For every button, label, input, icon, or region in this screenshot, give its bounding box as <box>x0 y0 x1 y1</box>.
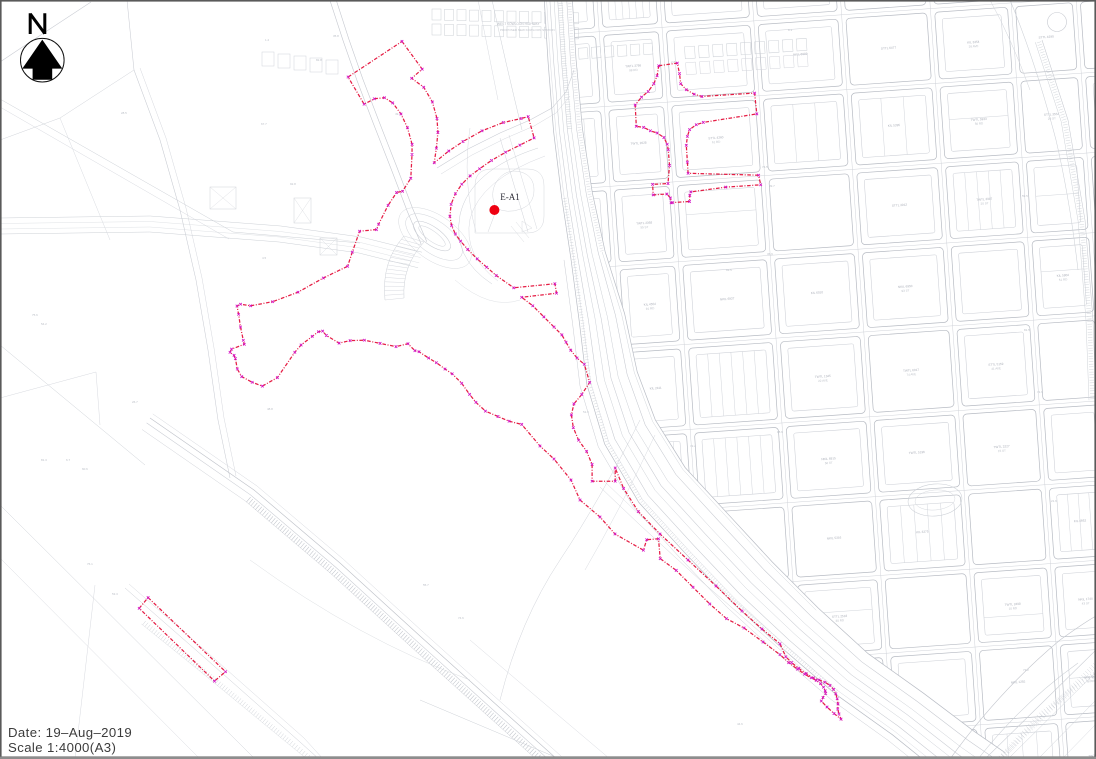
svg-text:55.7: 55.7 <box>423 583 429 587</box>
svg-text:91 RD: 91 RD <box>646 306 656 311</box>
svg-text:Date: 19–Aug–2019: Date: 19–Aug–2019 <box>8 725 132 740</box>
svg-text:92.8: 92.8 <box>290 182 296 186</box>
svg-text:26.7: 26.7 <box>132 400 138 404</box>
svg-text:51.3: 51.3 <box>583 410 589 414</box>
svg-text:4.5: 4.5 <box>262 256 267 260</box>
svg-text:30 RD: 30 RD <box>835 618 845 623</box>
svg-text:Scale 1:4000(A3): Scale 1:4000(A3) <box>8 740 116 755</box>
svg-text:15 ST: 15 ST <box>998 449 1006 454</box>
svg-text:60.6: 60.6 <box>82 467 88 471</box>
svg-text:54.2: 54.2 <box>41 322 47 326</box>
svg-text:6.7: 6.7 <box>66 458 71 462</box>
svg-text:22 AVE: 22 AVE <box>818 378 828 383</box>
svg-text:59.5: 59.5 <box>1022 194 1028 198</box>
svg-text:72.2: 72.2 <box>690 444 696 448</box>
svg-text:81.5: 81.5 <box>1024 328 1030 332</box>
svg-text:51 RD: 51 RD <box>1059 277 1069 282</box>
svg-text:91.5: 91.5 <box>726 268 732 272</box>
svg-text:93 ST: 93 ST <box>901 288 909 293</box>
svg-text:61 RD: 61 RD <box>712 140 722 145</box>
svg-text:E-A1: E-A1 <box>500 192 520 202</box>
svg-text:81.3: 81.3 <box>41 458 47 462</box>
svg-text:76.1: 76.1 <box>87 562 93 566</box>
svg-text:20 ST: 20 ST <box>980 201 988 206</box>
svg-text:55 ST: 55 ST <box>640 225 648 230</box>
svg-text:36.9: 36.9 <box>767 252 773 256</box>
svg-text:20 ST: 20 ST <box>1048 116 1056 121</box>
svg-text:1.2: 1.2 <box>265 38 270 42</box>
svg-text:WEST KOWLOON HIGHWAY: WEST KOWLOON HIGHWAY <box>497 22 540 26</box>
svg-text:73.2: 73.2 <box>1023 668 1029 672</box>
svg-text:21.6: 21.6 <box>1051 499 1057 503</box>
svg-text:28.5: 28.5 <box>121 111 127 115</box>
svg-text:82.8: 82.8 <box>316 58 322 62</box>
svg-text:10 RD: 10 RD <box>1009 606 1019 611</box>
svg-text:74.6: 74.6 <box>458 616 464 620</box>
svg-text:35.8: 35.8 <box>333 34 339 38</box>
svg-text:56 RD: 56 RD <box>975 121 985 126</box>
svg-text:44.6: 44.6 <box>737 722 743 726</box>
svg-text:43 ST: 43 ST <box>1082 601 1090 606</box>
svg-text:18.6: 18.6 <box>777 430 783 434</box>
svg-text:98 RD: 98 RD <box>629 68 639 73</box>
svg-text:53.3: 53.3 <box>112 592 118 596</box>
svg-text:PROPOSED NEW KOWLOON STATION: PROPOSED NEW KOWLOON STATION <box>500 28 555 32</box>
svg-text:56 ST: 56 ST <box>825 461 833 466</box>
svg-text:75.6: 75.6 <box>32 313 38 317</box>
svg-text:26 AVE: 26 AVE <box>969 44 979 49</box>
svg-text:71.6: 71.6 <box>1037 390 1043 394</box>
svg-text:67.7: 67.7 <box>261 122 267 126</box>
svg-text:39.7: 39.7 <box>769 184 775 188</box>
svg-text:41 AVE: 41 AVE <box>991 366 1001 371</box>
svg-text:74.5: 74.5 <box>762 165 768 169</box>
svg-text:48.8: 48.8 <box>267 407 273 411</box>
svg-text:74 AVE: 74 AVE <box>906 372 916 377</box>
svg-text:8.1: 8.1 <box>788 28 793 32</box>
